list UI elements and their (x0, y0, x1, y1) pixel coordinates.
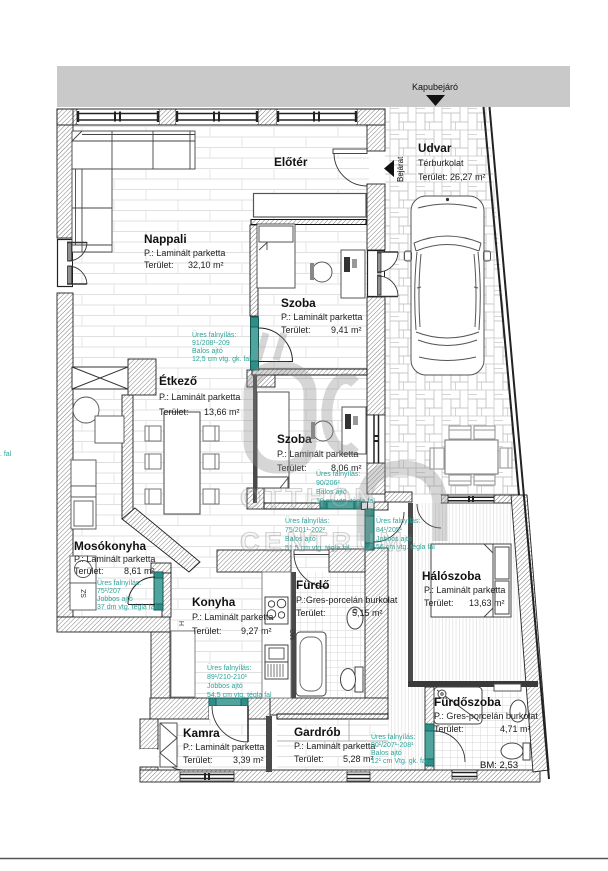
svg-text:Üres falnyílás:: Üres falnyílás: (371, 733, 415, 741)
svg-text:P.: Laminált parketta: P.: Laminált parketta (424, 585, 505, 595)
svg-text:P.: Laminált parketta: P.: Laminált parketta (159, 392, 240, 402)
svg-text:P.: Gres-porcelán burkolat: P.: Gres-porcelán burkolat (434, 711, 538, 721)
svg-text:Terület:: Terület: (434, 724, 464, 734)
svg-text:Terület:: Terület: (294, 754, 324, 764)
svg-text:32,10 m²: 32,10 m² (188, 260, 224, 270)
svg-text:Szoba: Szoba (281, 296, 316, 310)
svg-text:5,15 m²: 5,15 m² (352, 608, 383, 618)
svg-text:P.: Laminált parketta: P.: Laminált parketta (281, 312, 362, 322)
svg-text:Terület:: Terület: (296, 608, 326, 618)
svg-text:12¹ cm Vtg. gk. fal: 12¹ cm Vtg. gk. fal (371, 758, 428, 765)
svg-text:13,63 m²: 13,63 m² (469, 598, 505, 608)
svg-text:P.: Laminált parketta: P.: Laminált parketta (74, 554, 155, 564)
svg-text:P.:Gres-porcelán burkolat: P.:Gres-porcelán burkolat (296, 595, 398, 605)
svg-text:Kamra: Kamra (183, 726, 220, 740)
svg-text:t. fal: t. fal (0, 451, 12, 458)
svg-text:9,27 m²: 9,27 m² (241, 626, 272, 636)
svg-text:OTTHON: OTTHON (240, 483, 378, 513)
svg-text:Jobbos ajtó: Jobbos ajtó (97, 596, 133, 603)
svg-text:Fürdőszoba: Fürdőszoba (434, 695, 501, 709)
svg-text:P.: Laminált parketta: P.: Laminált parketta (144, 248, 225, 258)
svg-text:Előtér: Előtér (274, 155, 308, 169)
svg-text:91/208¹-209: 91/208¹-209 (192, 340, 230, 347)
svg-text:H: H (179, 621, 186, 626)
svg-text:P.: Laminált parketta: P.: Laminált parketta (294, 741, 375, 751)
svg-text:4,71 m²: 4,71 m² (500, 724, 531, 734)
svg-text:P.: Laminált parketta: P.: Laminált parketta (183, 742, 264, 752)
svg-text:Terület: 26,27 m²: Terület: 26,27 m² (418, 172, 486, 182)
svg-text:Üres falnyílás:: Üres falnyílás: (285, 517, 329, 525)
svg-text:89¹/210-210¹: 89¹/210-210¹ (207, 674, 248, 681)
svg-text:Balos ajtó: Balos ajtó (371, 750, 402, 757)
svg-text:Nappali: Nappali (144, 232, 187, 246)
svg-text:CENTRUM: CENTRUM (240, 527, 407, 557)
svg-text:Kapubejáró: Kapubejáró (412, 82, 458, 92)
svg-text:9,41 m²: 9,41 m² (331, 325, 362, 335)
svg-text:3,39 m²: 3,39 m² (233, 755, 264, 765)
svg-text:Mosókonyha: Mosókonyha (74, 539, 147, 553)
svg-text:75¹/207: 75¹/207 (97, 588, 121, 595)
svg-text:5,28 m²: 5,28 m² (343, 754, 374, 764)
svg-text:Terület:: Terület: (144, 260, 174, 270)
svg-text:Üres falnyílás:: Üres falnyílás: (376, 517, 420, 525)
svg-text:Terület:: Terület: (192, 626, 222, 636)
svg-text:37 dm vtg. tégla fal: 37 dm vtg. tégla fal (97, 604, 157, 611)
svg-text:Gardrób: Gardrób (294, 725, 341, 739)
svg-text:Terület:: Terület: (183, 755, 213, 765)
svg-text:Hálószoba: Hálószoba (422, 569, 481, 583)
svg-text:Konyha: Konyha (192, 595, 236, 609)
svg-text:Udvar: Udvar (418, 141, 452, 155)
svg-text:54,5 cm vtg. tégla fal: 54,5 cm vtg. tégla fal (207, 692, 272, 699)
svg-text:Terület:: Terület: (159, 407, 189, 417)
svg-text:P.: Laminált parketta: P.: Laminált parketta (192, 612, 273, 622)
svg-text:SZ: SZ (81, 588, 88, 598)
svg-text:8,61 m²: 8,61 m² (124, 566, 155, 576)
svg-text:Üres falnyílás:: Üres falnyílás: (97, 579, 141, 587)
svg-text:BM: 2,53: BM: 2,53 (480, 760, 518, 771)
svg-text:13,66 m²: 13,66 m² (204, 407, 240, 417)
svg-text:90¹/207¹-208¹: 90¹/207¹-208¹ (371, 742, 414, 749)
svg-text:Jobbos ajtó: Jobbos ajtó (207, 683, 243, 690)
svg-text:Balos ajtó: Balos ajtó (192, 348, 223, 355)
svg-text:Térburkolat: Térburkolat (418, 158, 464, 168)
svg-text:Fürdő: Fürdő (296, 578, 329, 592)
svg-text:Terület:: Terület: (424, 598, 454, 608)
svg-text:Étkező: Étkező (159, 374, 197, 388)
svg-text:Üres falnyílás:: Üres falnyílás: (207, 664, 251, 672)
svg-text:Üres falnyílás:: Üres falnyílás: (192, 331, 236, 339)
svg-text:Terület:: Terület: (74, 566, 104, 576)
svg-text:Bejárat: Bejárat (396, 156, 405, 182)
svg-text:12,5 cm vtg. gk. fal: 12,5 cm vtg. gk. fal (192, 356, 251, 363)
svg-text:Üres falnyílás:: Üres falnyílás: (316, 470, 360, 478)
